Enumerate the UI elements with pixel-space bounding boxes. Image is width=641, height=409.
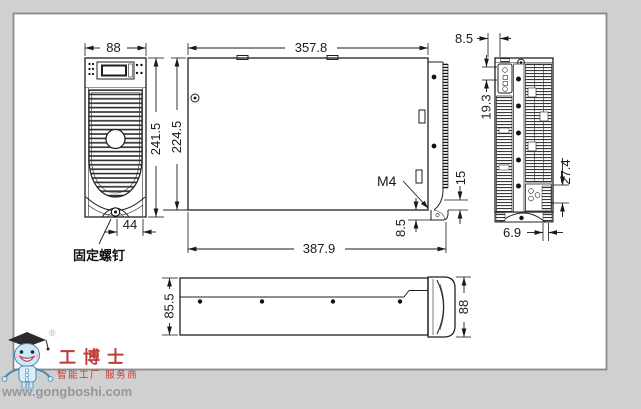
dim-rear-connector: 19.3	[479, 94, 494, 119]
fixing-screw-note: 固定螺钉	[73, 248, 125, 263]
rear-right-terminal-strip	[526, 64, 552, 182]
dim-front-height: 241.5	[148, 123, 163, 156]
brand-tagline: 智能工厂 服务商	[57, 369, 138, 381]
serrated-fins	[443, 64, 448, 188]
dim-front-width: 88	[106, 40, 120, 55]
registered-mark: ®	[49, 328, 56, 338]
fixing-screw-icon	[111, 208, 119, 216]
dim-side-foot: 8.5	[393, 219, 408, 237]
dim-bottom-depth: 85.5	[162, 293, 177, 318]
dim-side-top-length: 357.8	[295, 40, 328, 55]
label-m4: M4	[377, 173, 397, 189]
dim-side-total-length: 387.9	[303, 241, 336, 256]
dim-rear-terminal: 27.4	[558, 159, 573, 184]
rear-left-terminal-strip	[497, 96, 513, 212]
dim-rear-top: 8.5	[455, 31, 473, 46]
dimension-drawing-page: 88 241.5 44 固定螺钉	[0, 0, 641, 409]
brand-name: 工博士	[59, 347, 131, 367]
rear-bottom-screw-icon	[519, 216, 523, 220]
dim-rear-bottom: 6.9	[503, 225, 521, 240]
fan-hub-hole	[106, 130, 125, 149]
rear-center-rail	[514, 64, 525, 212]
dim-bottom-width: 88	[456, 300, 471, 314]
dim-side-edge: 15	[453, 171, 468, 185]
dim-side-height: 224.5	[169, 121, 184, 154]
rear-bottom-terminal-block	[526, 184, 552, 211]
website-url: www.gongboshi.com	[1, 384, 132, 399]
drawing-canvas: 88 241.5 44 固定螺钉	[0, 0, 641, 409]
display-screen	[102, 66, 126, 76]
dim-front-base: 44	[123, 217, 137, 232]
